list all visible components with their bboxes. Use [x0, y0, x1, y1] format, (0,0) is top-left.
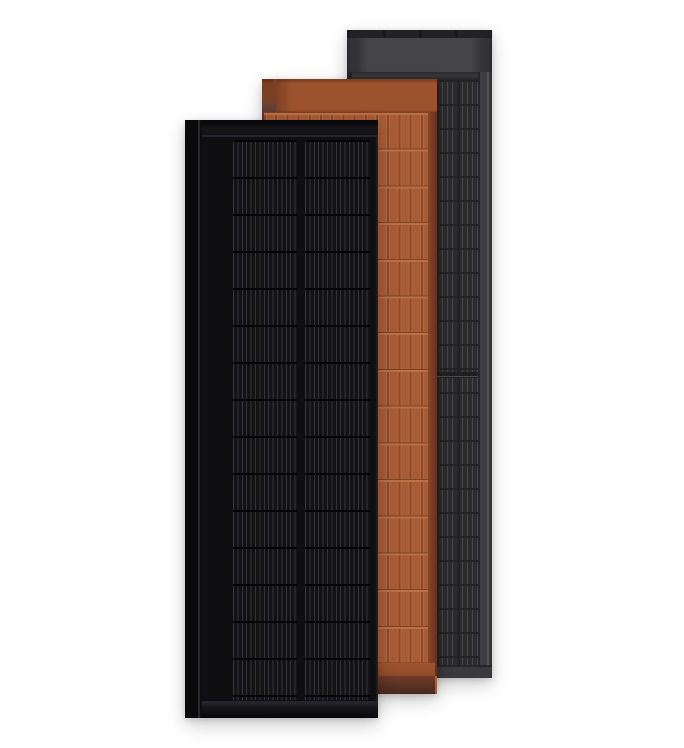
- terracotta-panel-header-band: [262, 79, 437, 112]
- black-panel-cell-column-right: [305, 140, 370, 700]
- black-panel-left-edge-strip: [185, 120, 202, 718]
- solar-panel-black: [185, 120, 378, 718]
- product-image-solar-panels: [0, 0, 684, 748]
- black-panel-top-rail: [202, 120, 378, 137]
- gray-panel-right-frame: [478, 72, 492, 665]
- black-panel-face: [202, 120, 378, 718]
- black-panel-cell-column-left: [233, 140, 297, 700]
- gray-panel-top-rail: [347, 30, 492, 38]
- black-panel-bottom-rail: [202, 701, 378, 718]
- gray-panel-header-band: [350, 38, 489, 72]
- terracotta-panel-right-edge: [428, 112, 437, 676]
